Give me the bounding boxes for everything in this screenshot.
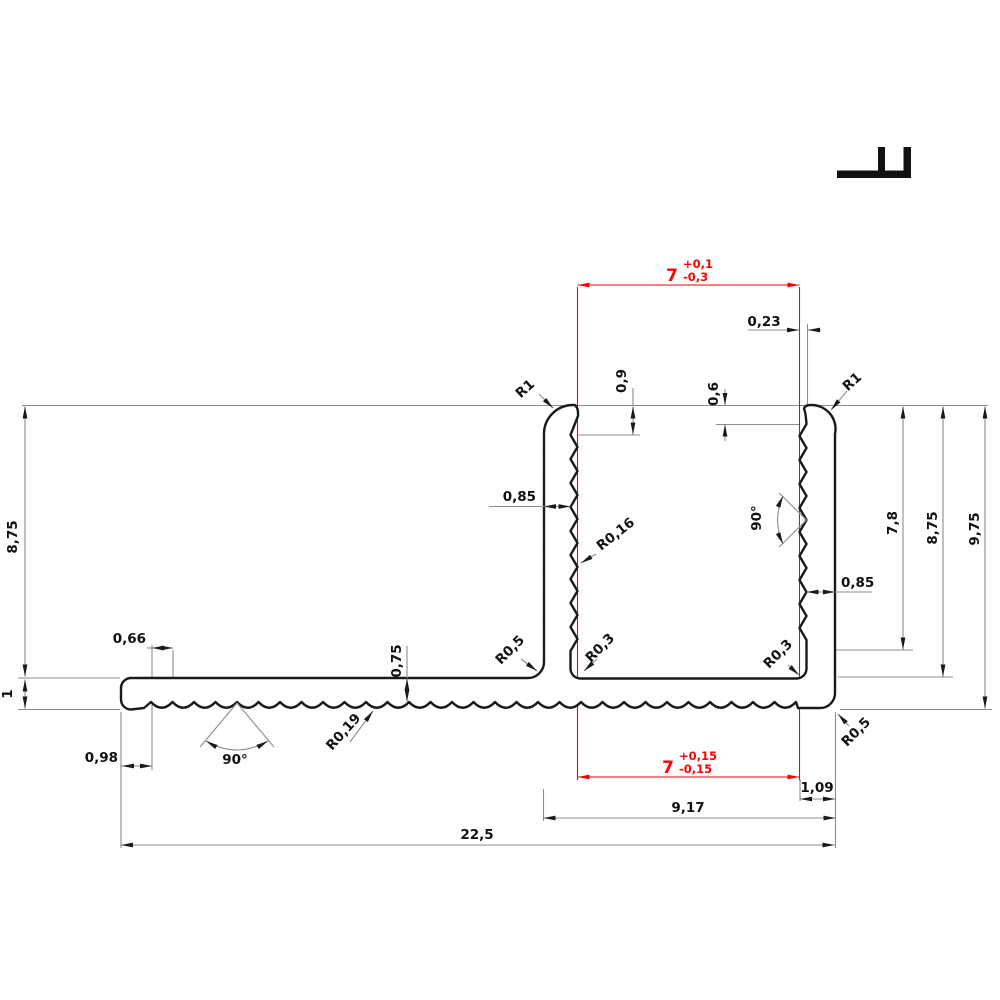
dim-height-06: 0,6 xyxy=(706,382,722,406)
dim-radius-r05-left: R0,5 xyxy=(492,632,528,668)
dim-radius-r03-left: R0,3 xyxy=(582,630,618,666)
dim-height-1: 1 xyxy=(0,689,16,698)
dim-radius-r016: R0,16 xyxy=(594,515,638,555)
dim-radius-r1-right: R1 xyxy=(840,369,865,394)
dim-tol-bottom-value: 7 xyxy=(662,758,674,778)
dim-tol-top-minus: -0,3 xyxy=(683,270,708,284)
dim-width-085-right: 0,85 xyxy=(841,575,874,591)
dim-angle-90-bottom: 90° xyxy=(222,752,248,768)
profile-thumbnail-icon xyxy=(837,147,911,178)
dim-width-098: 0,98 xyxy=(85,750,118,766)
dim-radius-r019: R0,19 xyxy=(323,710,364,753)
dim-height-78: 7,8 xyxy=(885,511,901,535)
dim-width-023: 0,23 xyxy=(747,314,780,330)
dim-tol-bottom-minus: -0,15 xyxy=(679,762,712,776)
dim-height-09: 0,9 xyxy=(614,369,630,393)
dim-width-085-left: 0,85 xyxy=(503,489,536,505)
technical-drawing-page: 0,23 0,9 0,6 R1 R1 0,85 R0,16 90° 7,8 8,… xyxy=(0,0,1000,1000)
dim-width-917: 9,17 xyxy=(671,800,704,816)
dim-height-975: 9,75 xyxy=(967,512,983,545)
dim-width-066: 0,66 xyxy=(113,631,146,647)
dim-tol-top-plus: +0,1 xyxy=(683,257,713,271)
profile-outline xyxy=(121,405,836,710)
dim-height-875-left: 8,75 xyxy=(5,520,21,553)
dim-angle-90-right: 90° xyxy=(749,505,765,531)
dim-width-225: 22,5 xyxy=(460,827,493,843)
dim-radius-r03-right: R0,3 xyxy=(760,636,796,672)
dim-tol-bottom-plus: +0,15 xyxy=(679,749,717,763)
dim-width-109: 1,09 xyxy=(800,780,833,796)
dim-radius-r1-left: R1 xyxy=(513,376,538,401)
dim-height-075: 0,75 xyxy=(389,644,405,677)
dim-tol-top-value: 7 xyxy=(666,266,678,286)
dim-height-875-right: 8,75 xyxy=(925,511,941,544)
technical-drawing-canvas: 0,23 0,9 0,6 R1 R1 0,85 R0,16 90° 7,8 8,… xyxy=(0,0,1000,1000)
